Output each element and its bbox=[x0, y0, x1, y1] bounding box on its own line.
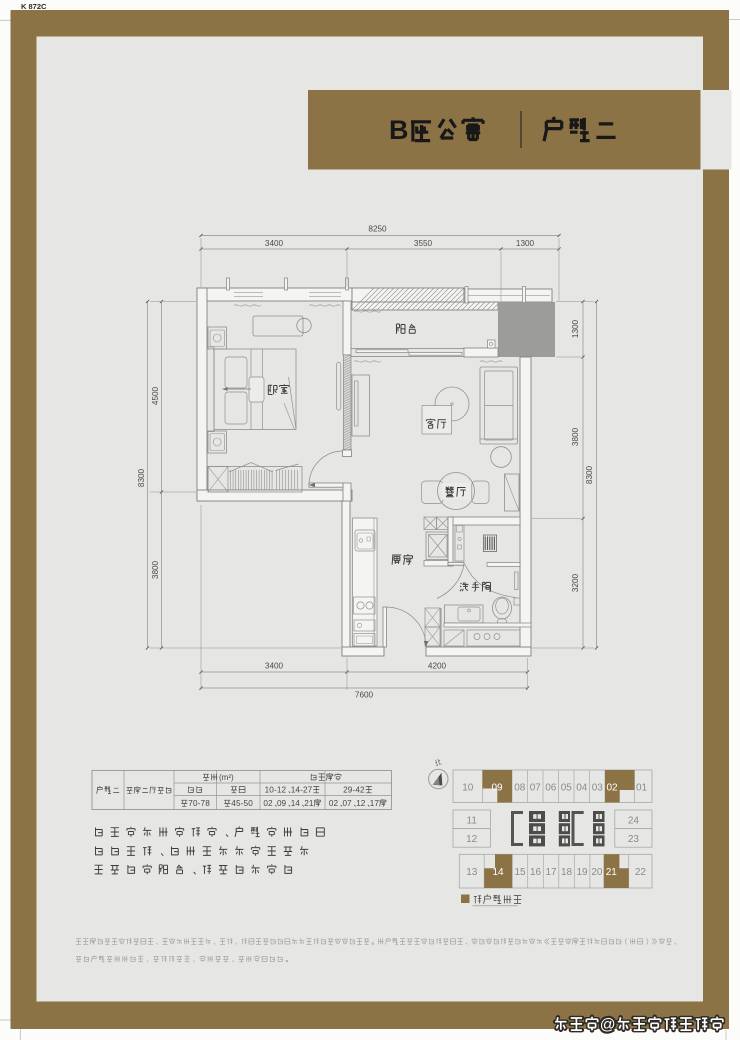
svg-text:20: 20 bbox=[591, 867, 603, 878]
svg-text:07: 07 bbox=[530, 783, 542, 794]
svg-text:17: 17 bbox=[545, 867, 557, 878]
svg-text:02: 02 bbox=[263, 799, 273, 808]
svg-text:21: 21 bbox=[606, 867, 618, 878]
svg-text:18: 18 bbox=[561, 867, 573, 878]
svg-text:4200: 4200 bbox=[428, 662, 447, 671]
svg-text:1300: 1300 bbox=[516, 239, 535, 248]
svg-text:24: 24 bbox=[628, 816, 640, 827]
svg-text:11: 11 bbox=[467, 816, 478, 827]
svg-text:23: 23 bbox=[628, 834, 640, 845]
svg-text:3800: 3800 bbox=[151, 560, 160, 579]
svg-text:01: 01 bbox=[636, 783, 648, 794]
svg-text:10: 10 bbox=[462, 783, 474, 794]
svg-text:13: 13 bbox=[466, 867, 478, 878]
svg-text:12: 12 bbox=[356, 799, 366, 808]
svg-text:14: 14 bbox=[291, 799, 301, 808]
svg-text:3800: 3800 bbox=[571, 427, 580, 446]
svg-text:7600: 7600 bbox=[355, 691, 374, 700]
svg-text:4500: 4500 bbox=[151, 386, 160, 405]
svg-text:3200: 3200 bbox=[571, 573, 580, 592]
svg-text:04: 04 bbox=[576, 783, 588, 794]
svg-text:B: B bbox=[389, 115, 409, 145]
svg-text:K 872C: K 872C bbox=[21, 2, 47, 11]
svg-text:07: 07 bbox=[343, 799, 353, 808]
svg-text:45-50: 45-50 bbox=[231, 799, 253, 808]
svg-text:14-27: 14-27 bbox=[291, 786, 313, 795]
svg-text:09: 09 bbox=[277, 799, 287, 808]
svg-text:14: 14 bbox=[492, 867, 504, 878]
svg-text:8300: 8300 bbox=[137, 468, 146, 487]
svg-text:21: 21 bbox=[304, 799, 314, 808]
svg-text:17: 17 bbox=[370, 799, 380, 808]
svg-text:70-78: 70-78 bbox=[188, 799, 210, 808]
svg-text:15: 15 bbox=[514, 867, 526, 878]
svg-text:22: 22 bbox=[635, 867, 647, 878]
svg-text:3400: 3400 bbox=[265, 662, 284, 671]
svg-text:03: 03 bbox=[592, 783, 604, 794]
svg-text:16: 16 bbox=[530, 867, 542, 878]
svg-text:08: 08 bbox=[514, 783, 526, 794]
svg-text:8250: 8250 bbox=[368, 225, 387, 234]
svg-text:19: 19 bbox=[576, 867, 588, 878]
svg-text:3400: 3400 bbox=[265, 239, 284, 248]
svg-text:02: 02 bbox=[329, 799, 339, 808]
svg-text:09: 09 bbox=[491, 783, 503, 794]
svg-text:8300: 8300 bbox=[585, 465, 594, 484]
svg-text:06: 06 bbox=[545, 783, 557, 794]
svg-text:02: 02 bbox=[606, 783, 618, 794]
svg-text:10-12: 10-12 bbox=[265, 786, 287, 795]
svg-text:12: 12 bbox=[466, 834, 478, 845]
svg-text:@: @ bbox=[600, 1017, 616, 1034]
svg-text:1300: 1300 bbox=[571, 319, 580, 338]
svg-text:29-42: 29-42 bbox=[343, 786, 365, 795]
svg-text:3550: 3550 bbox=[414, 239, 433, 248]
svg-text:05: 05 bbox=[561, 783, 573, 794]
svg-text:(m²): (m²) bbox=[219, 773, 234, 782]
